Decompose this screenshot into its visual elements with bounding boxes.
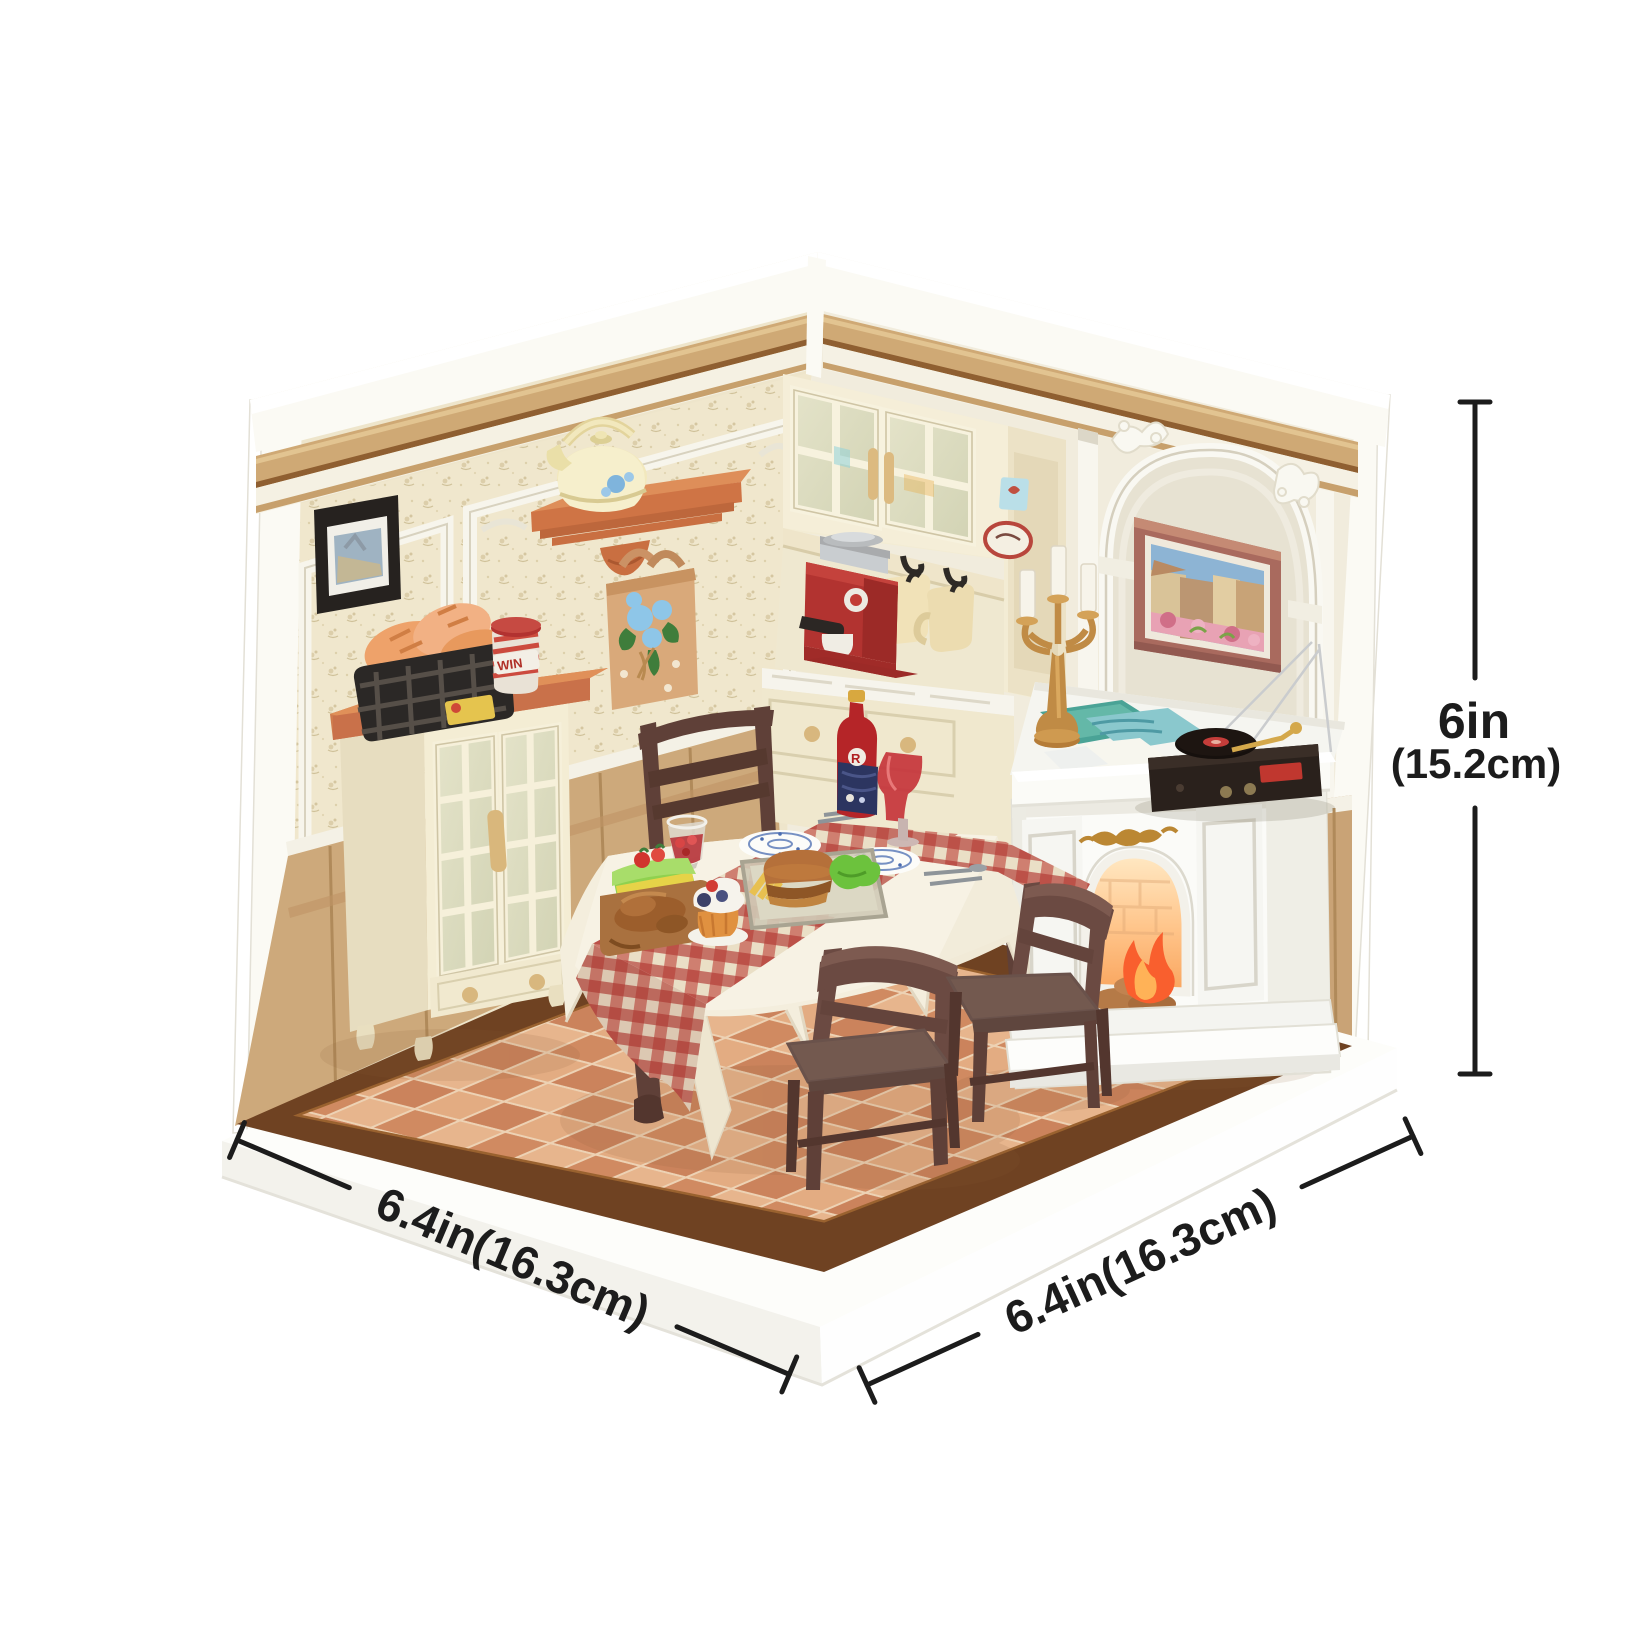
svg-text:(15.2cm): (15.2cm) xyxy=(1391,740,1561,787)
svg-text:R: R xyxy=(851,751,861,766)
